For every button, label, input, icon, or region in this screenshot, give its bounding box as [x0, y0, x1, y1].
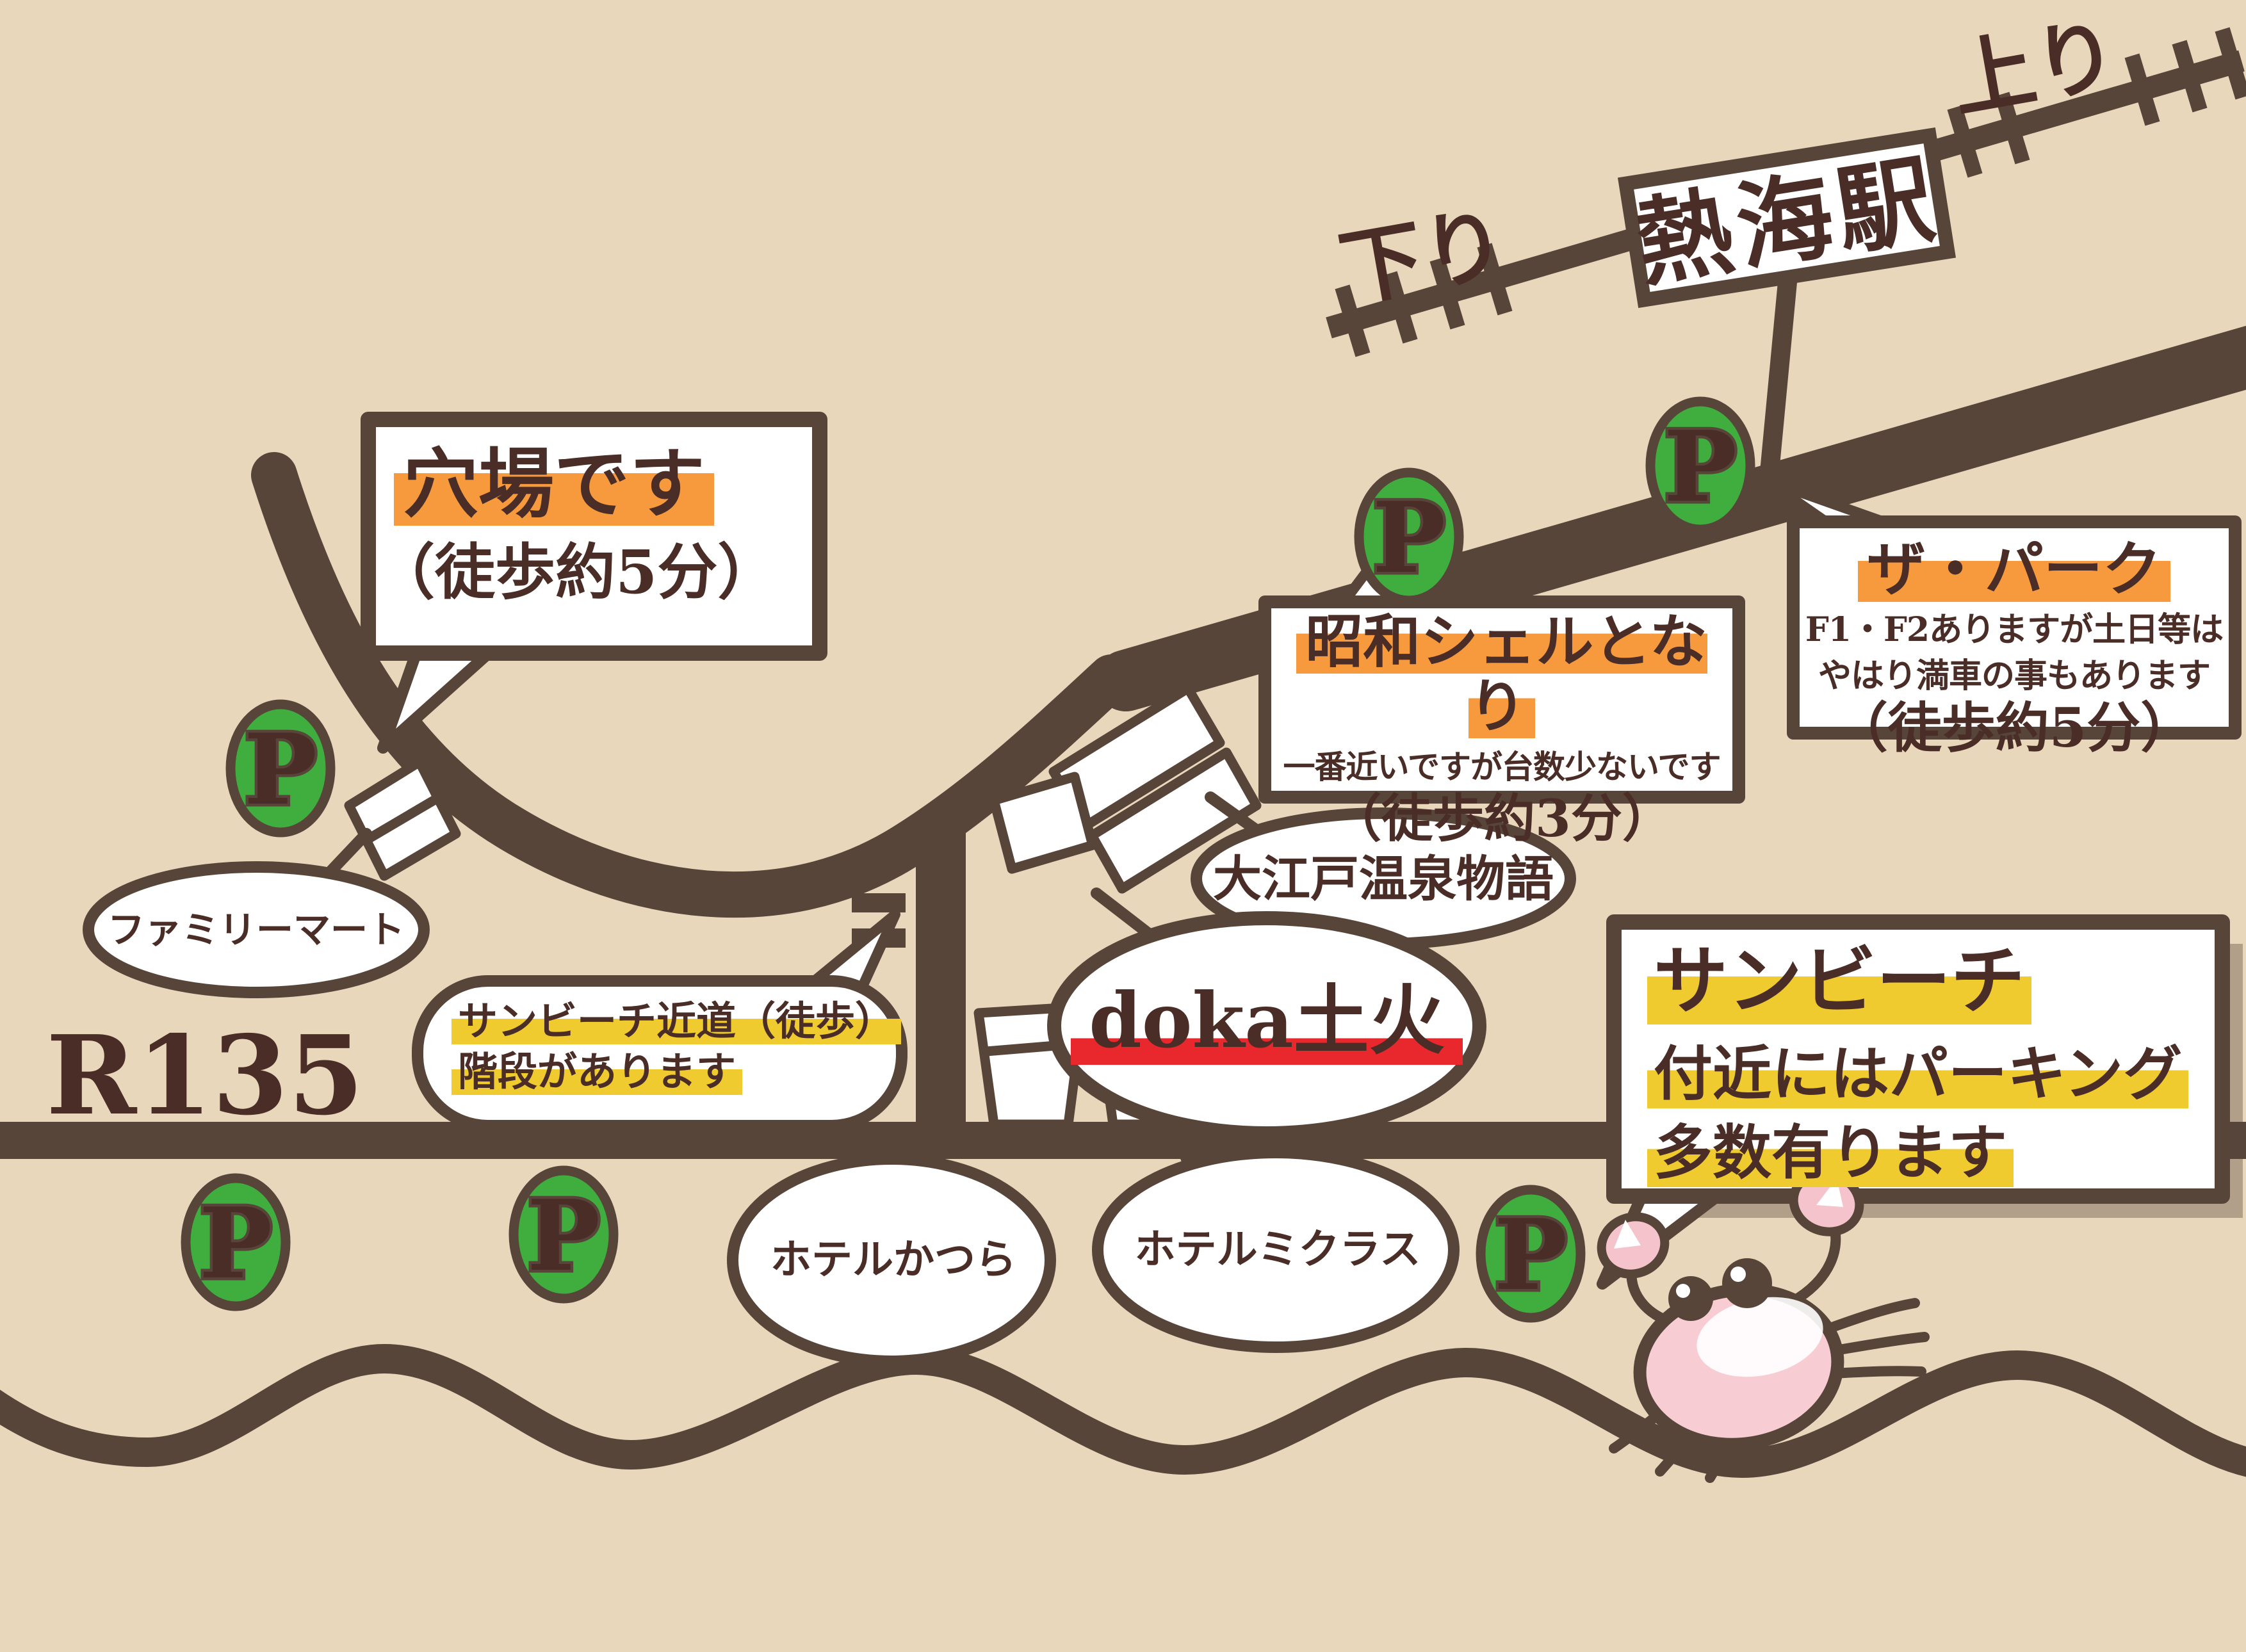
down-line-label: 下り: [1333, 193, 1514, 319]
anaba-title: 穴場です: [394, 439, 714, 528]
parking-icon-r135-mid: [514, 1170, 614, 1299]
train-station-sign: 熱海駅: [1626, 136, 1948, 302]
thepark-walk-time: （徒歩約5分）: [1803, 698, 2226, 758]
thepark-note-2: やはり満車の事もあります: [1803, 658, 2226, 695]
hotel-katsura-label: ホテルかつら: [736, 1237, 1050, 1283]
thepark-title: ザ・パーク: [1858, 535, 2170, 604]
map-graphics: P 熱海駅 下り 上: [0, 0, 2246, 1652]
showa-title: 昭和シェルとなり: [1296, 608, 1707, 740]
access-map: P 熱海駅 下り 上: [0, 0, 2246, 1652]
sunbeach-note-1: 付近にはパーキング: [1647, 1039, 2188, 1108]
parking-icon-anaba: [231, 704, 330, 832]
parking-icon-micuras: [1481, 1190, 1581, 1318]
anaba-walk-time: （徒歩約5分）: [375, 539, 810, 606]
doka-label-text: doka土火: [1071, 976, 1462, 1065]
parking-icon-showa: [1359, 473, 1459, 601]
thepark-bubble-text: ザ・パーク F1・F2ありますが土日等は やはり満車の事もあります （徒歩約5分…: [1803, 537, 2226, 758]
doka-label: doka土火: [1057, 978, 1477, 1063]
sunbeach-bubble-text: サンビーチ 付近にはパーキング 多数有ります: [1647, 940, 2204, 1186]
showa-note: 一番近いですが台数少ないです: [1274, 749, 1729, 785]
ooedo-label: 大江戸温泉物語: [1201, 852, 1566, 906]
parking-icon-thepark: [1650, 401, 1750, 530]
thepark-note-1: F1・F2ありますが土日等は: [1803, 611, 2226, 649]
showa-bubble-text: 昭和シェルとなり 一番近いですが台数少ないです （徒歩約3分）: [1274, 610, 1729, 847]
shortcut-bubble-text: サンビーチ近道（徒歩） 階段があります: [452, 999, 887, 1094]
svg-text:熱海駅: 熱海駅: [1629, 142, 1946, 301]
familymart-label: ファミリーマート: [91, 909, 421, 951]
shortcut-line1: サンビーチ近道（徒歩）: [452, 998, 901, 1044]
shortcut-line2: 階段があります: [452, 1048, 742, 1095]
hotel-micuras-label: ホテルミクラス: [1105, 1227, 1451, 1273]
railway: 熱海駅 下り 上り: [1329, 4, 2243, 506]
route-135-label: R135: [46, 1015, 364, 1137]
vertical-road: [916, 813, 966, 1137]
sunbeach-note-2: 多数有ります: [1647, 1118, 2014, 1187]
sunbeach-title: サンビーチ: [1647, 937, 2031, 1024]
anaba-bubble-text: 穴場です （徒歩約5分）: [394, 442, 810, 606]
parking-icon-r135-left: [186, 1178, 286, 1306]
showa-walk-time: （徒歩約3分）: [1274, 790, 1729, 848]
